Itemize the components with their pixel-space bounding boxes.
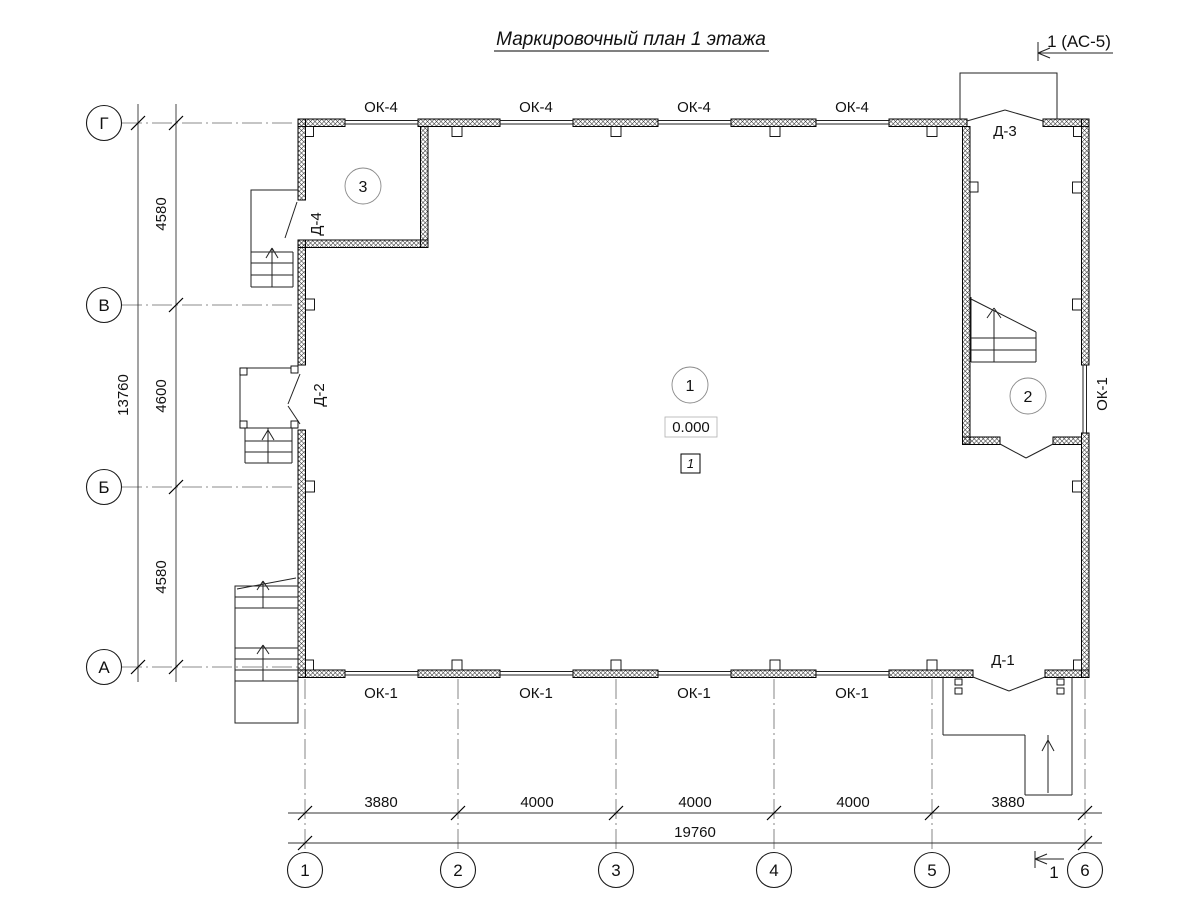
- axis-bubbles-bottom: 1 2 3 4 5 6: [288, 853, 1103, 888]
- axis-label-v: В: [98, 296, 109, 315]
- window-label-ok1-4: ОК-1: [835, 685, 869, 702]
- door-labels: Д-4 Д-2 Д-3 Д-1: [308, 123, 1017, 669]
- floor-type-value: 1: [687, 456, 694, 471]
- room-number-1: 1: [686, 378, 695, 395]
- elevation-value: 0.000: [672, 419, 710, 436]
- door-leaf-d2: [288, 374, 300, 424]
- room-marks: 1 2 3: [345, 168, 1046, 414]
- door-leaf-d3: [967, 110, 1043, 121]
- porch-stair-d1: [943, 678, 1072, 796]
- dimension-text: 4580 4600 4580 13760 3880 4000 4000 4000…: [115, 197, 1025, 841]
- dim-left-total: 13760: [115, 374, 132, 416]
- dim-bottom-seg-1: 3880: [364, 794, 397, 811]
- axis-label-3: 3: [611, 861, 620, 880]
- dim-left-seg-2: 4600: [153, 379, 170, 412]
- dim-left-seg-1: 4580: [153, 197, 170, 230]
- door-label-d3: Д-3: [993, 123, 1017, 140]
- axis-label-a: А: [98, 658, 110, 677]
- room-number-3: 3: [359, 179, 368, 196]
- dim-bottom-seg-5: 3880: [991, 794, 1024, 811]
- section-mark-bottom-label: 1: [1049, 863, 1058, 882]
- door-leaf-d4: [285, 202, 297, 238]
- plan-canvas: Маркировочный план 1 этажа 1 (АС-5) 1: [0, 0, 1200, 900]
- door-leaf-room2: [1000, 444, 1053, 458]
- section-mark-top-label: 1 (АС-5): [1047, 32, 1111, 51]
- window-label-ok4-1: ОК-4: [364, 99, 398, 116]
- door-leaf-d1: [973, 677, 1045, 691]
- porch-stair-d2: [240, 366, 298, 463]
- axis-label-g: Г: [99, 114, 108, 133]
- porch-d3-top-right: [960, 73, 1057, 119]
- section-mark-top: 1 (АС-5): [1038, 32, 1113, 61]
- elevation-mark: 0.000: [665, 417, 717, 437]
- dim-bottom-total: 19760: [674, 824, 716, 841]
- window-labels: ОК-4 ОК-4 ОК-4 ОК-4 ОК-1 ОК-1 ОК-1 ОК-1 …: [364, 99, 1111, 702]
- window-label-ok4-2: ОК-4: [519, 99, 553, 116]
- drawing-title: Маркировочный план 1 этажа: [496, 29, 766, 50]
- axis-label-4: 4: [769, 861, 778, 880]
- dim-bottom-seg-4: 4000: [836, 794, 869, 811]
- axis-centerlines: [122, 123, 1085, 852]
- axis-label-6: 6: [1080, 861, 1089, 880]
- window-label-ok4-4: ОК-4: [835, 99, 869, 116]
- axis-label-1: 1: [300, 861, 309, 880]
- floor-plan-drawing: Маркировочный план 1 этажа 1 (АС-5) 1: [0, 0, 1200, 900]
- window-label-ok1-2: ОК-1: [519, 685, 553, 702]
- axis-label-2: 2: [453, 861, 462, 880]
- section-mark-bottom: 1: [1035, 851, 1064, 882]
- window-label-ok1-1: ОК-1: [364, 685, 398, 702]
- window-label-ok1-3: ОК-1: [677, 685, 711, 702]
- door-label-d4: Д-4: [308, 212, 325, 236]
- dim-bottom-seg-3: 4000: [678, 794, 711, 811]
- window-label-ok4-3: ОК-4: [677, 99, 711, 116]
- door-label-d1: Д-1: [991, 652, 1015, 669]
- stair-room2: [971, 297, 1036, 362]
- window-label-ok1-right: ОК-1: [1094, 377, 1111, 411]
- porch-stair-d4: [251, 190, 298, 287]
- door-label-d2: Д-2: [311, 383, 328, 407]
- window-right: [1083, 365, 1087, 433]
- room-number-2: 2: [1024, 389, 1033, 406]
- stair-bottom-left: [235, 578, 298, 723]
- dim-left-seg-3: 4580: [153, 560, 170, 593]
- floor-type-mark: 1: [681, 454, 700, 473]
- axis-label-5: 5: [927, 861, 936, 880]
- dim-bottom-seg-2: 4000: [520, 794, 553, 811]
- axis-label-b: Б: [98, 478, 109, 497]
- interior-walls: [298, 127, 1082, 445]
